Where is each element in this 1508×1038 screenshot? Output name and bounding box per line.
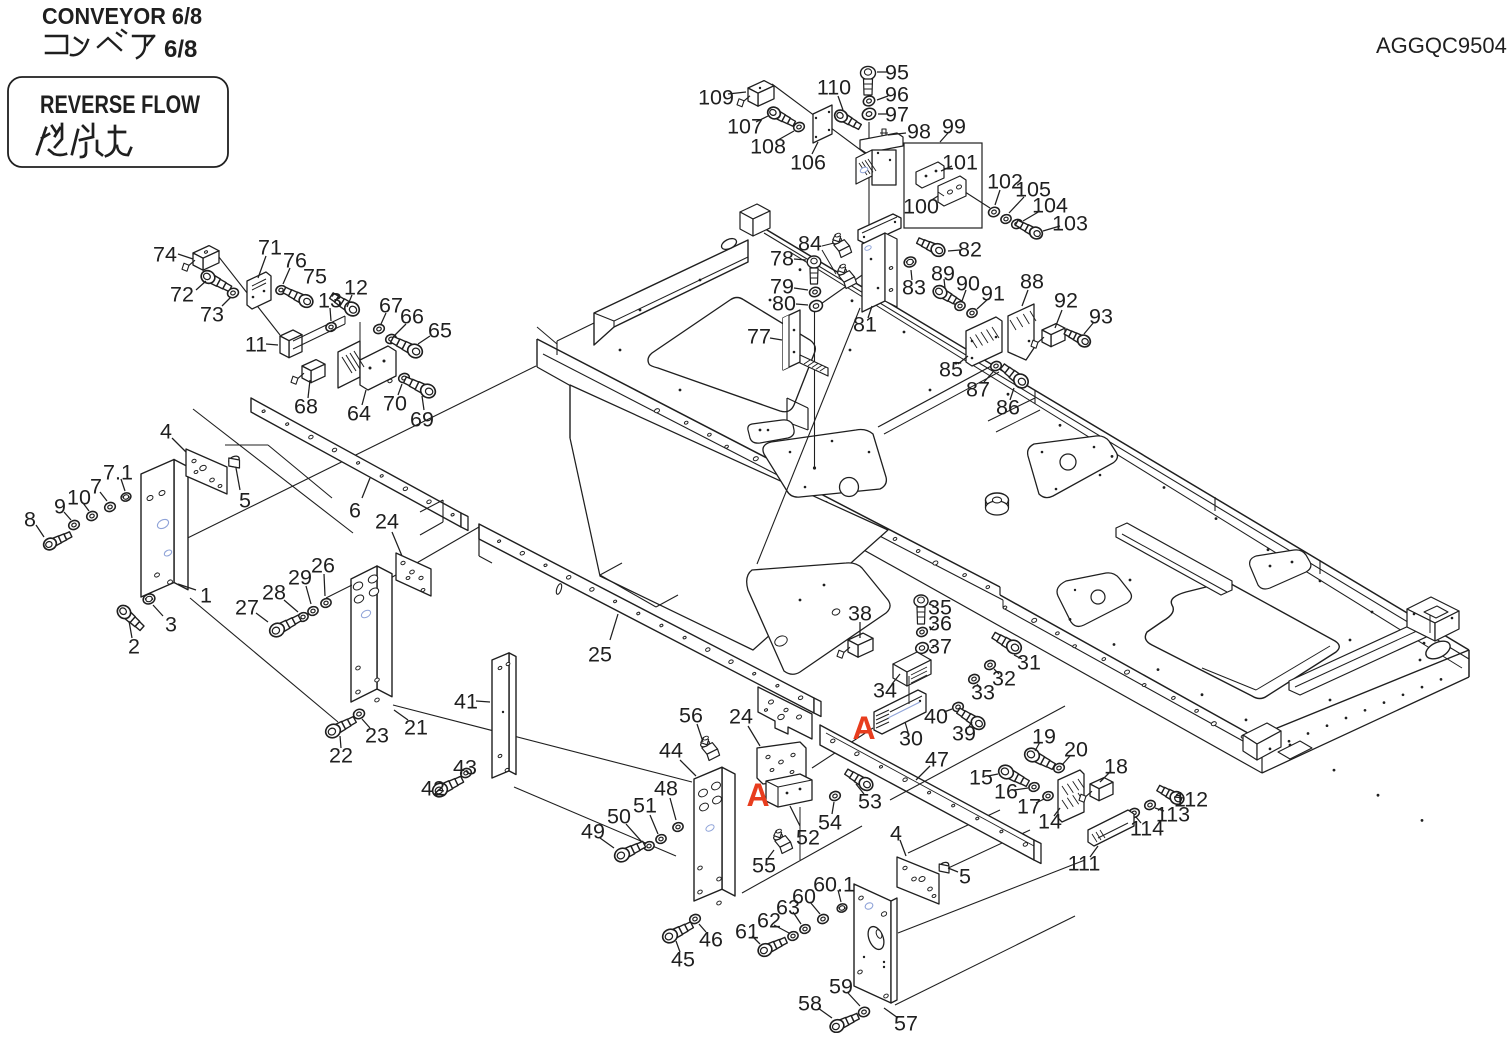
- svg-text:110: 110: [817, 76, 851, 100]
- svg-text:39: 39: [952, 722, 976, 746]
- svg-text:24: 24: [375, 510, 399, 534]
- svg-text:43: 43: [453, 756, 477, 780]
- svg-text:36: 36: [928, 612, 952, 636]
- svg-text:14: 14: [1038, 810, 1062, 834]
- svg-text:37: 37: [928, 635, 952, 659]
- svg-text:5: 5: [959, 865, 971, 889]
- svg-text:103: 103: [1052, 212, 1088, 236]
- svg-text:98: 98: [907, 120, 931, 144]
- svg-text:53: 53: [858, 790, 882, 814]
- svg-text:84: 84: [798, 232, 822, 256]
- svg-text:3: 3: [165, 613, 177, 637]
- svg-text:24: 24: [729, 705, 753, 729]
- svg-text:1: 1: [200, 584, 212, 608]
- svg-text:85: 85: [939, 358, 963, 382]
- svg-text:101: 101: [942, 151, 978, 175]
- svg-text:48: 48: [654, 777, 678, 801]
- svg-text:58: 58: [798, 992, 822, 1016]
- svg-text:11: 11: [245, 333, 267, 357]
- svg-text:7: 7: [90, 475, 102, 499]
- svg-text:97: 97: [885, 103, 909, 127]
- svg-text:60.1: 60.1: [813, 873, 855, 897]
- svg-text:64: 64: [347, 402, 371, 426]
- svg-text:93: 93: [1089, 305, 1113, 329]
- svg-text:REVERSE FLOW: REVERSE FLOW: [40, 91, 200, 119]
- svg-text:55: 55: [752, 854, 776, 878]
- svg-text:73: 73: [200, 303, 224, 327]
- svg-text:69: 69: [410, 408, 434, 432]
- svg-text:49: 49: [581, 820, 605, 844]
- svg-text:70: 70: [383, 392, 407, 416]
- svg-text:10: 10: [67, 486, 91, 510]
- svg-text:114: 114: [1130, 817, 1164, 841]
- svg-text:62: 62: [757, 909, 781, 933]
- svg-text:57: 57: [894, 1012, 918, 1033]
- svg-text:42: 42: [421, 777, 445, 801]
- svg-text:68: 68: [294, 395, 318, 419]
- svg-text:CONVEYOR 6/8: CONVEYOR 6/8: [42, 3, 202, 29]
- svg-text:8: 8: [24, 508, 36, 532]
- svg-text:26: 26: [311, 554, 335, 578]
- svg-text:78: 78: [770, 247, 794, 271]
- svg-text:51: 51: [633, 794, 657, 818]
- svg-text:72: 72: [170, 283, 194, 307]
- svg-text:66: 66: [400, 305, 424, 329]
- svg-text:33: 33: [971, 681, 995, 705]
- svg-text:81: 81: [853, 313, 877, 337]
- svg-text:AGGQC9504: AGGQC9504: [1376, 33, 1507, 58]
- svg-text:86: 86: [996, 396, 1020, 420]
- svg-text:30: 30: [899, 727, 923, 751]
- svg-text:88: 88: [1020, 270, 1044, 294]
- svg-text:82: 82: [958, 238, 982, 262]
- svg-text:92: 92: [1054, 289, 1078, 313]
- svg-text:7.1: 7.1: [103, 461, 133, 485]
- svg-text:80: 80: [772, 292, 796, 316]
- svg-text:65: 65: [428, 319, 452, 343]
- svg-text:89: 89: [931, 262, 955, 286]
- svg-text:29: 29: [288, 566, 312, 590]
- svg-text:2: 2: [128, 635, 140, 659]
- svg-text:90: 90: [956, 272, 980, 296]
- svg-text:46: 46: [699, 928, 723, 952]
- svg-text:6/8: 6/8: [164, 36, 197, 63]
- svg-text:41: 41: [454, 690, 478, 714]
- svg-text:77: 77: [747, 325, 771, 349]
- svg-text:16: 16: [994, 780, 1018, 804]
- svg-text:56: 56: [679, 704, 703, 728]
- svg-text:109: 109: [698, 86, 734, 110]
- svg-text:83: 83: [902, 276, 926, 300]
- svg-text:87: 87: [966, 378, 990, 402]
- svg-text:95: 95: [885, 61, 909, 85]
- svg-text:75: 75: [303, 265, 327, 289]
- svg-text:38: 38: [848, 602, 872, 626]
- svg-text:5: 5: [239, 489, 251, 513]
- svg-text:27: 27: [235, 596, 259, 620]
- svg-text:111: 111: [1068, 852, 1101, 876]
- svg-text:31: 31: [1017, 651, 1041, 675]
- svg-text:28: 28: [262, 581, 286, 605]
- svg-text:40: 40: [924, 705, 948, 729]
- svg-text:15: 15: [969, 766, 993, 790]
- svg-text:19: 19: [1032, 725, 1056, 749]
- svg-text:45: 45: [671, 948, 695, 972]
- svg-text:54: 54: [818, 811, 842, 835]
- svg-text:44: 44: [659, 739, 683, 763]
- svg-text:12: 12: [344, 276, 368, 300]
- svg-text:71: 71: [258, 236, 282, 260]
- svg-text:9: 9: [54, 495, 66, 519]
- svg-text:A: A: [746, 777, 769, 813]
- svg-text:6: 6: [349, 499, 361, 523]
- svg-text:74: 74: [153, 243, 177, 267]
- svg-text:52: 52: [796, 826, 820, 850]
- svg-text:A: A: [852, 710, 875, 746]
- svg-text:106: 106: [790, 151, 826, 175]
- svg-text:25: 25: [588, 643, 612, 667]
- svg-text:4: 4: [160, 420, 172, 444]
